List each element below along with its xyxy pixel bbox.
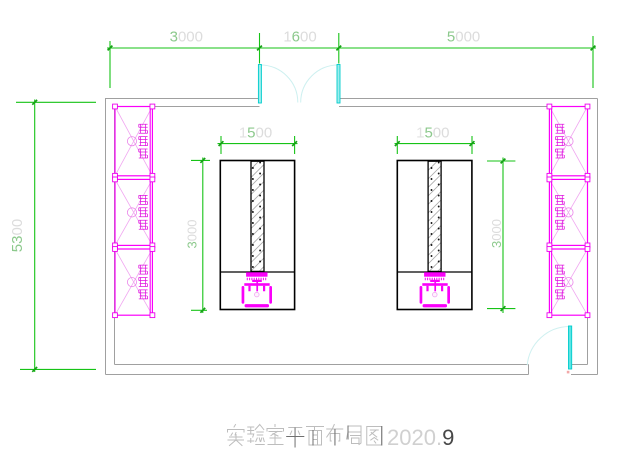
svg-text:3000: 3000 — [489, 219, 504, 248]
svg-text:5300: 5300 — [9, 219, 26, 252]
svg-text:3000: 3000 — [170, 29, 203, 46]
svg-text:2020.9: 2020.9 — [387, 425, 454, 450]
svg-text:1500: 1500 — [239, 125, 272, 142]
svg-text:3000: 3000 — [185, 220, 200, 249]
svg-text:1500: 1500 — [416, 125, 449, 142]
svg-text:5000: 5000 — [447, 29, 480, 46]
svg-text:1600: 1600 — [283, 29, 316, 46]
